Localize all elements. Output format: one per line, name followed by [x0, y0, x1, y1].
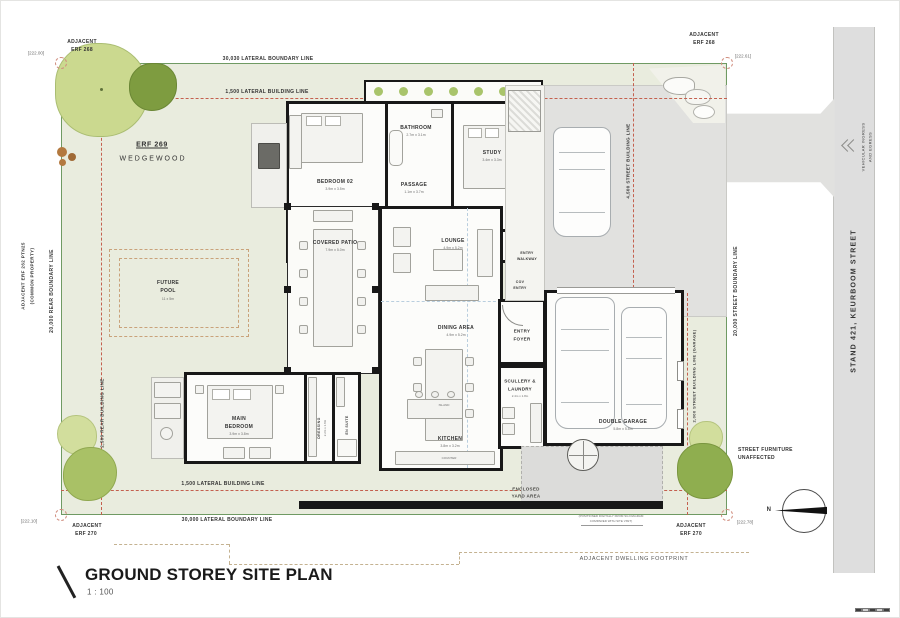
top-boundary-label: 30,030 LATERAL BOUNDARY LINE [223, 56, 314, 62]
column [372, 367, 379, 374]
deck-table [258, 143, 280, 169]
pillow [233, 389, 251, 400]
survey-note-2: COMPARED WITH SITE VISIT) [590, 519, 632, 523]
shower [337, 439, 357, 457]
scale-bar-segment [869, 608, 876, 612]
neighbor-top-left-1: ADJACENT [67, 39, 97, 45]
suburb-name: WEDGEWOOD [120, 156, 187, 163]
car-garage-2 [621, 307, 667, 429]
vanity [336, 377, 345, 407]
setout-line [467, 208, 468, 468]
north-label: N [767, 507, 772, 513]
chair [299, 325, 308, 334]
footprint-line [459, 552, 460, 564]
kitchen-island [407, 399, 463, 419]
scale-bar [855, 608, 890, 612]
chair [413, 357, 422, 366]
setout-line [381, 301, 501, 302]
pool-label-2: POOL [160, 288, 175, 294]
rear-building-label: 2,500 REAR BUILDING LINE [100, 378, 105, 447]
street-building-line [633, 63, 634, 293]
room-kitchen-dims: 3.8m x 3.2m [440, 444, 459, 448]
room-main-bedroom-2: BEDROOM [225, 424, 253, 430]
sofa [425, 285, 479, 301]
chair [299, 269, 308, 278]
level-top-right: [222.61] [735, 54, 751, 59]
room-garage-dims: 5.8m x 5.8m [613, 427, 632, 431]
armchair [393, 227, 411, 247]
room-en-suite: EN SUITE [345, 415, 349, 434]
chair [299, 241, 308, 250]
built-in [249, 447, 271, 459]
chair [465, 357, 474, 366]
street-building-label: 4,500 STREET BUILDING LINE [626, 123, 631, 198]
boulder [693, 105, 715, 119]
yard-wall [299, 501, 663, 509]
level-bottom-left: [222.10] [21, 519, 37, 524]
dressing-cabinet [308, 377, 317, 457]
appliance [502, 407, 515, 419]
pool-label-1: FUTURE [157, 280, 179, 286]
corner-peg [55, 509, 67, 521]
title-tick [57, 566, 76, 599]
car-garage-1 [555, 297, 615, 429]
corner-peg [721, 509, 733, 521]
pillow [306, 116, 322, 126]
top-building-label: 1,500 LATERAL BUILDING LINE [225, 89, 308, 95]
room-main-bedroom-dims: 3.9m x 3.8m [229, 432, 248, 436]
survey-note-1: (POSITIONED DIGITALLY FROM SG DIAGRAM [579, 514, 644, 518]
page-title: GROUND STOREY SITE PLAN [85, 565, 333, 585]
room-bedroom02: BEDROOM 02 [317, 179, 353, 185]
plant [374, 87, 383, 96]
car-roof-line [561, 350, 609, 351]
pool-dims: 11 x 5m [162, 297, 174, 301]
bathtub [389, 130, 403, 166]
vehicular-ingress-2: AND EGRESS [868, 132, 873, 162]
level-top-left: [222.00] [28, 51, 44, 56]
car-windshield [561, 329, 609, 330]
garage-window [677, 361, 684, 381]
car-rear-line [561, 402, 609, 403]
room-entry-foyer-1: ENTRY [514, 329, 531, 334]
room-covered-patio: COVERED PATIO [313, 240, 358, 246]
pillow [212, 389, 230, 400]
chair [465, 383, 474, 392]
survey-note-leader [581, 525, 643, 526]
neighbor-top-right-2: ERF 268 [693, 40, 715, 46]
room-scullery-2: LAUNDRY [508, 387, 532, 392]
pillow [468, 128, 482, 138]
yard-label-1: ENCLOSED [512, 487, 539, 492]
shrub [57, 147, 67, 157]
neighbor-top-right-1: ADJACENT [689, 32, 719, 38]
neighbor-bottom-right-1: ADJACENT [676, 523, 706, 529]
car-driveway [553, 127, 611, 237]
room-entry-walkway-1: ENTRY [520, 251, 533, 255]
water-feature [508, 90, 541, 132]
room-bathroom-dims: 2.7m x 3.1m [406, 133, 425, 137]
column [372, 203, 379, 210]
coffee-table [433, 249, 463, 271]
room-dining-dims: 4.9m x 5.2m [446, 333, 465, 337]
sofa [477, 229, 493, 277]
car-roof-line [626, 358, 662, 359]
stool [431, 391, 439, 398]
column [284, 286, 291, 293]
plant [399, 87, 408, 96]
room-kitchen: KITCHEN [438, 436, 462, 442]
footprint-label: ADJACENT DWELLING FOOTPRINT [580, 556, 689, 562]
tree-center [100, 88, 103, 91]
bin-store-line [569, 455, 597, 456]
room-dressing-dims: 2.2m x 1.8m [323, 420, 327, 437]
patio-table [313, 229, 353, 347]
site-plan-sheet: N ERF 269 WEDGEWOOD FUTURE POOL 11 x 5m … [0, 0, 900, 618]
counter-label: COUNTER [442, 456, 457, 460]
boulder [685, 89, 711, 105]
armchair [393, 253, 411, 273]
basin [431, 109, 443, 118]
level-bottom-right: [222.78] [737, 520, 753, 525]
neighbor-left-1: ADJACENT ERF 262 PTN25 [21, 242, 26, 310]
side-table [195, 385, 204, 394]
lounger [154, 403, 181, 419]
room-bedroom02-dims: 3.9m x 3.5m [325, 187, 344, 191]
car-windshield [626, 337, 662, 338]
scale-bar-segment [862, 608, 869, 612]
room-lounge: LOUNGE [441, 238, 464, 244]
garage-window [677, 409, 684, 429]
pillow [485, 128, 499, 138]
scale-bar-segment [883, 608, 890, 612]
street-name-label: STAND 421, KEURBOOM STREET [851, 229, 858, 372]
braai-counter [313, 210, 353, 222]
room-lounge-dims: 4.9m x 5.2m [443, 246, 462, 250]
erf-number: ERF 269 [136, 142, 168, 149]
scullery-counter [530, 403, 542, 443]
column [372, 286, 379, 293]
island-label: ISLAND [439, 403, 450, 407]
plant [449, 87, 458, 96]
chair [357, 241, 366, 250]
chair [299, 297, 308, 306]
neighbor-bottom-left-2: ERF 270 [75, 531, 97, 537]
car-rear-line [626, 404, 662, 405]
wall [332, 374, 335, 462]
corner-peg [721, 57, 733, 69]
neighbor-bottom-left-1: ADJACENT [72, 523, 102, 529]
bottom-boundary-label: 30,000 LATERAL BOUNDARY LINE [182, 517, 273, 523]
pillow [325, 116, 341, 126]
vehicular-ingress-1: VEHICULAR INGRESS [861, 123, 866, 172]
scale-bar-segment [855, 608, 862, 612]
neighbor-bottom-right-2: ERF 270 [680, 531, 702, 537]
room-scullery-dims: 2.4m x 1.8m [512, 394, 529, 398]
bin-store [567, 439, 599, 471]
chair [465, 409, 474, 418]
shrub [68, 153, 76, 161]
room-entry-foyer-2: FOYER [513, 337, 530, 342]
room-garage: DOUBLE GARAGE [599, 419, 647, 425]
lounger [154, 382, 181, 398]
footprint-line [229, 544, 230, 564]
wall [304, 374, 307, 462]
appliance [502, 423, 515, 435]
vehicle-crossing [727, 97, 837, 201]
chair [357, 269, 366, 278]
column [284, 203, 291, 210]
built-in [223, 447, 245, 459]
shrub [59, 159, 66, 166]
tree-dark [677, 443, 733, 499]
car-roof-line [559, 169, 605, 170]
car-windshield [559, 152, 605, 153]
future-pool-inner [119, 258, 239, 328]
plant [474, 87, 483, 96]
side-table [275, 385, 284, 394]
room-cov-entry-1: COV [516, 280, 525, 284]
room-dressing: DRESSING [317, 417, 321, 438]
garage-building-label: 2,000 STREET BUILDING LINE (GARAGE) [692, 330, 697, 423]
chair [357, 297, 366, 306]
room-bathroom: BATHROOM [400, 125, 431, 131]
rear-boundary-label: 20,000 REAR BOUNDARY LINE [49, 249, 55, 333]
room-entry-walkway-2: WALKWAY [517, 257, 537, 261]
stool [415, 391, 423, 398]
room-study: STUDY [483, 150, 501, 156]
garage-door [557, 287, 675, 294]
room-scullery-1: SCULLERY & [504, 379, 536, 384]
corner-peg [55, 57, 67, 69]
yard-label-2: YARD AREA [512, 494, 541, 499]
bottom-building-label: 1,500 LATERAL BUILDING LINE [181, 481, 264, 487]
scale-bar-segment [876, 608, 883, 612]
plant [424, 87, 433, 96]
room-passage: PASSAGE [401, 182, 427, 188]
page-scale: 1 : 100 [87, 588, 114, 597]
room-covered-patio-dims: 7.9m x 5.0m [325, 248, 344, 252]
neighbor-top-left-2: ERF 268 [71, 47, 93, 53]
street-boundary-label: 20,000 STREET BOUNDARY LINE [733, 246, 739, 336]
street-furniture-note-1: STREET FURNITURE [738, 447, 793, 453]
footprint-line [459, 552, 749, 553]
room-passage-dims: 1.1m x 3.7m [404, 190, 423, 194]
footprint-line [114, 544, 229, 545]
chair [357, 325, 366, 334]
round-table [160, 427, 173, 440]
room-dining: DINING AREA [438, 325, 474, 331]
car-rear-line [559, 212, 605, 213]
room-main-bedroom-1: MAIN [232, 416, 246, 422]
room-cov-entry-2: ENTRY [513, 286, 526, 290]
stool [447, 391, 455, 398]
room-study-dims: 3.4m x 3.3m [482, 158, 501, 162]
neighbor-left-2: (COMMON PROPERTY) [30, 248, 35, 305]
street-furniture-note-2: UNAFFECTED [738, 455, 775, 461]
